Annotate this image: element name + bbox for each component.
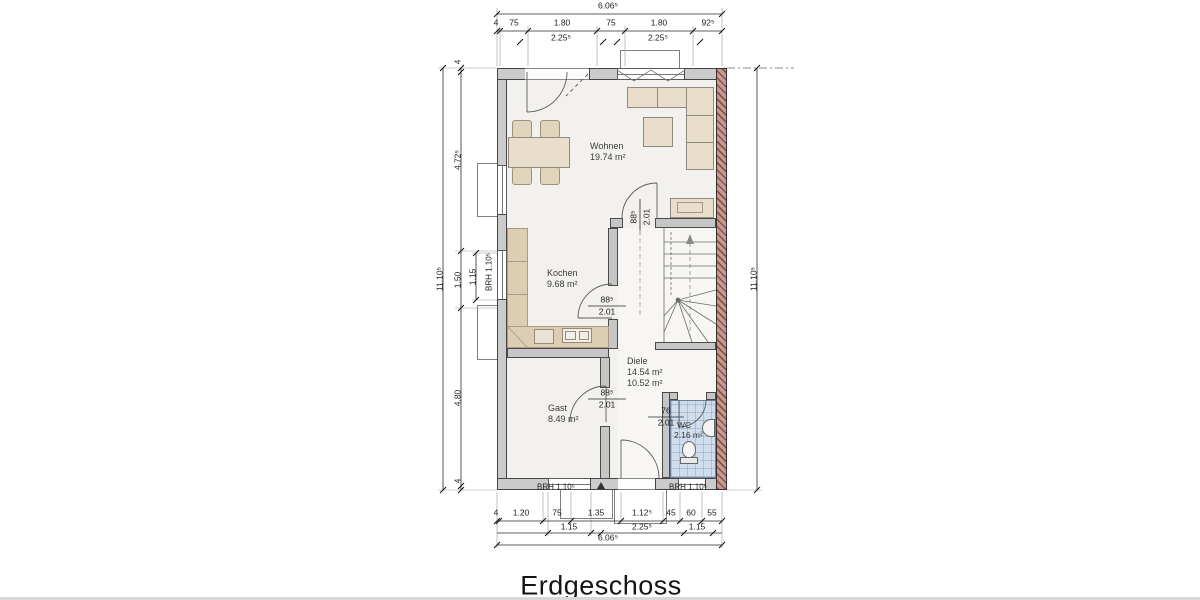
dim-right-overall: 11.10⁵: [750, 267, 759, 291]
room-label-wc: WC 2.16 m²: [677, 420, 703, 440]
counter-corner-line: [507, 326, 528, 348]
casement-window-symbol: [617, 70, 685, 81]
room-area: 10.52 m²: [627, 378, 663, 389]
dim-bottom: 75: [552, 509, 561, 518]
staircase: [664, 228, 716, 342]
dim-bottom: 1.20: [513, 509, 530, 518]
dim-left: 4: [454, 479, 463, 484]
door-wohnen-diele-width: 88⁵: [630, 211, 639, 224]
dim-top-sub: 2.25⁵: [551, 34, 571, 43]
dim-bottom-sub: 2.25⁵: [632, 523, 652, 532]
dim-top: 75: [509, 19, 518, 28]
dim-top: 1.80: [651, 19, 668, 28]
room-label-wohnen: Wohnen 19.74 m²: [590, 141, 626, 163]
room-label-gast: Gast 8.49 m²: [548, 403, 579, 425]
dim-top-overall: 6.06⁵: [598, 2, 618, 11]
threshold-marker: [597, 482, 605, 489]
dim-bottom: 1.12⁵: [632, 509, 652, 518]
dim-top: 75: [606, 19, 615, 28]
dim-bottom-sub: 1.15: [689, 523, 706, 532]
room-area: 9.68 m²: [547, 279, 578, 290]
entrance-door-second-leaf: [566, 74, 588, 96]
room-area: 19.74 m²: [590, 152, 626, 163]
stair-walkline-arrow: [686, 234, 694, 244]
dim-bottom: 45: [666, 509, 675, 518]
room-label-kochen: Kochen 9.68 m²: [547, 268, 578, 290]
room-name: WC: [677, 420, 703, 430]
page-title: Erdgeschoss: [520, 571, 682, 600]
dim-bottom: 1.35: [588, 509, 605, 518]
dim-bottom: 60: [686, 509, 695, 518]
rear-door-arc: [621, 440, 659, 478]
room-name: Wohnen: [590, 141, 626, 152]
room-name: Gast: [548, 403, 579, 414]
door-kochen-width: 88⁵: [601, 296, 614, 305]
room-area: 14.54 m²: [627, 367, 663, 378]
brh-label-wc: BRH 1.10⁵: [669, 483, 707, 492]
room-name: Diele: [627, 356, 663, 367]
dim-top: 4: [494, 19, 499, 28]
room-area: 8.49 m²: [548, 414, 579, 425]
dim-left: 4: [454, 60, 463, 65]
door-wohnen-diele-arc: [622, 183, 657, 218]
room-name: Kochen: [547, 268, 578, 279]
door-gast-width: 88⁵: [601, 389, 614, 398]
door-gast-height: 2.01: [599, 401, 616, 410]
door-kochen-height: 2.01: [599, 308, 616, 317]
door-wohnen-diele-height: 2.01: [643, 209, 652, 226]
dim-left: 1.50: [454, 272, 463, 289]
dim-top: 92⁵: [702, 19, 715, 28]
dim-left: 4.80: [454, 390, 463, 407]
dim-left-sub: 1.15: [469, 269, 478, 286]
dim-top: 1.80: [554, 19, 571, 28]
entrance-door-arc: [527, 72, 567, 112]
dim-bottom-sub: 1.15: [561, 523, 578, 532]
floor-plan-page: 6.06⁵ 4 75 1.80 75 1.80 92⁵ 2.25⁵ 2.25⁵ …: [0, 0, 1200, 600]
brh-label-gast: BRH 1.10⁵: [537, 483, 575, 492]
door-wc-height: 2.01: [658, 419, 675, 428]
dim-left-overall: 11.10⁵: [436, 267, 445, 291]
dim-bottom: 4: [494, 509, 499, 518]
room-area: 2.16 m²: [674, 430, 703, 440]
dim-top-sub: 2.25⁵: [648, 34, 668, 43]
room-label-diele: Diele 14.54 m² 10.52 m²: [627, 356, 663, 389]
dim-bottom: 55: [707, 509, 716, 518]
brh-label-left: BRH 1.10⁵: [485, 253, 494, 291]
door-wc-width: 76: [661, 407, 670, 416]
dim-bottom-overall: 6.06⁵: [598, 534, 618, 543]
dim-left: 4.72⁵: [454, 150, 463, 170]
